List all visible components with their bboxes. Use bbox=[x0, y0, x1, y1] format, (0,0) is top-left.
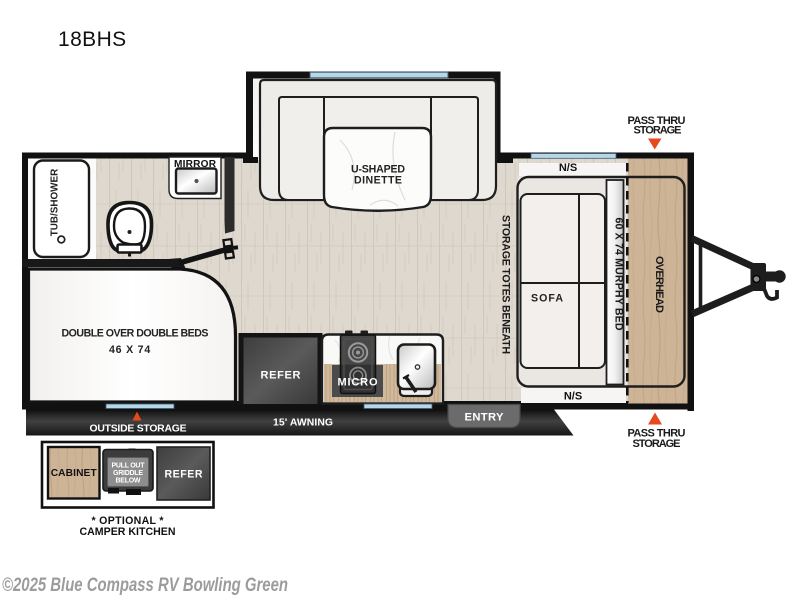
svg-text:60 X 74 MURPHY BED: 60 X 74 MURPHY BED bbox=[613, 218, 625, 331]
svg-text:PULL OUT: PULL OUT bbox=[112, 463, 146, 470]
svg-text:N/S: N/S bbox=[559, 162, 577, 174]
svg-text:STORAGE: STORAGE bbox=[634, 125, 682, 137]
svg-text:REFER: REFER bbox=[261, 370, 301, 382]
svg-text:OVERHEAD: OVERHEAD bbox=[653, 256, 665, 313]
svg-text:GRIDDLE: GRIDDLE bbox=[113, 470, 143, 477]
svg-text:BELOW: BELOW bbox=[116, 478, 141, 485]
svg-text:DOUBLE OVER DOUBLE BEDS: DOUBLE OVER DOUBLE BEDS bbox=[62, 328, 209, 340]
svg-text:ENTRY: ENTRY bbox=[465, 412, 505, 424]
svg-text:46 X 74: 46 X 74 bbox=[109, 344, 151, 356]
svg-text:CAMPER KITCHEN: CAMPER KITCHEN bbox=[80, 526, 176, 538]
svg-text:STORAGE TOTES BENEATH: STORAGE TOTES BENEATH bbox=[500, 215, 512, 354]
svg-text:SOFA: SOFA bbox=[531, 293, 563, 305]
svg-text:CABINET: CABINET bbox=[51, 468, 98, 479]
svg-text:©2025 Blue Compass RV Bowling: ©2025 Blue Compass RV Bowling Green bbox=[2, 575, 288, 596]
svg-text:18BHS: 18BHS bbox=[58, 28, 127, 51]
svg-text:STORAGE: STORAGE bbox=[633, 438, 681, 450]
svg-text:REFER: REFER bbox=[165, 469, 203, 481]
svg-text:TUB/SHOWER: TUB/SHOWER bbox=[50, 169, 61, 236]
svg-text:N/S: N/S bbox=[564, 391, 582, 403]
svg-text:15' AWNING: 15' AWNING bbox=[273, 418, 333, 429]
svg-text:OUTSIDE STORAGE: OUTSIDE STORAGE bbox=[90, 424, 187, 435]
svg-text:MICRO: MICRO bbox=[338, 377, 378, 389]
svg-text:DINETTE: DINETTE bbox=[354, 175, 402, 187]
